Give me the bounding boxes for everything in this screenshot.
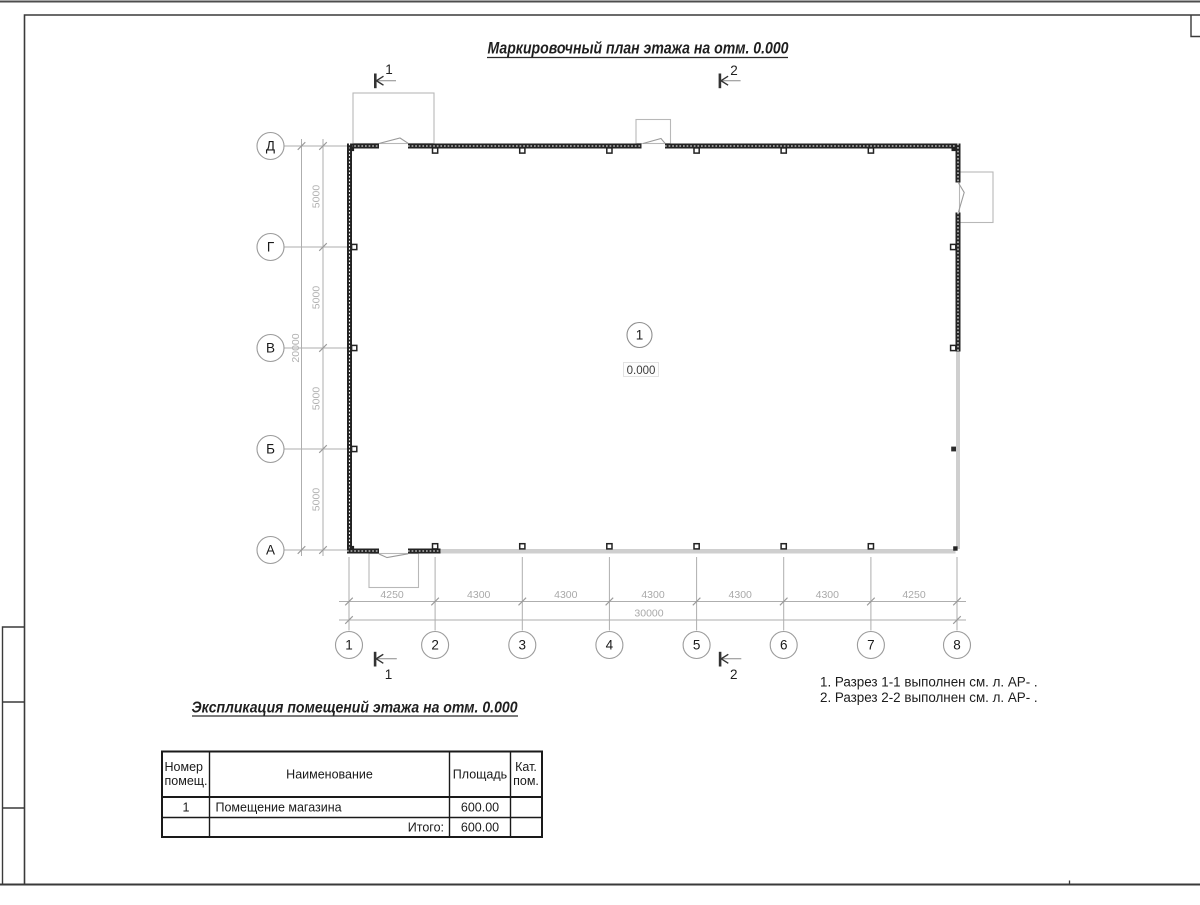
svg-text:помещ.: помещ. (165, 774, 208, 788)
svg-text:4250: 4250 (902, 589, 926, 601)
svg-text:4300: 4300 (641, 589, 665, 601)
svg-text:Номер: Номер (165, 760, 204, 774)
svg-text:20000: 20000 (290, 333, 302, 362)
svg-text:4300: 4300 (816, 589, 840, 601)
svg-text:1: 1 (385, 667, 393, 682)
svg-text:2: 2 (730, 63, 738, 78)
svg-text:600.00: 600.00 (461, 801, 499, 815)
svg-text:1: 1 (385, 62, 393, 77)
svg-text:7: 7 (867, 638, 875, 653)
svg-text:4300: 4300 (467, 589, 491, 601)
svg-text:Экспликация помещений этажа на: Экспликация помещений этажа на отм. 0.00… (192, 700, 518, 717)
svg-text:Наименование: Наименование (286, 768, 373, 782)
svg-text:Маркировочный план этажа на от: Маркировочный план этажа на отм. 0.000 (488, 40, 790, 58)
svg-text:5000: 5000 (311, 185, 323, 209)
svg-text:Кат.: Кат. (515, 760, 537, 774)
svg-text:2: 2 (730, 667, 738, 682)
svg-text:1: 1 (345, 638, 353, 653)
svg-text:Помещение магазина: Помещение магазина (216, 801, 342, 815)
svg-text:1. Разрез 1-1 выполнен см. л.: 1. Разрез 1-1 выполнен см. л. АР- . (820, 675, 1038, 690)
svg-text:4: 4 (606, 638, 614, 653)
svg-text:0.000: 0.000 (627, 365, 656, 377)
svg-text:1: 1 (183, 801, 190, 815)
svg-text:А: А (266, 543, 275, 558)
svg-text:4300: 4300 (554, 589, 578, 601)
svg-text:Площадь: Площадь (453, 768, 507, 782)
svg-text:30000: 30000 (634, 608, 663, 620)
svg-text:4250: 4250 (380, 589, 404, 601)
svg-text:6: 6 (780, 638, 788, 653)
svg-text:4300: 4300 (729, 589, 753, 601)
svg-text:600.00: 600.00 (461, 821, 499, 835)
svg-text:Итого:: Итого: (408, 821, 444, 835)
svg-text:5000: 5000 (311, 286, 323, 310)
svg-text:Д: Д (266, 139, 275, 154)
svg-text:5: 5 (693, 638, 701, 653)
svg-text:В: В (266, 341, 275, 356)
svg-text:Б: Б (266, 442, 275, 457)
svg-text:1: 1 (636, 328, 644, 343)
svg-text:2: 2 (431, 638, 439, 653)
svg-text:Г: Г (267, 240, 275, 255)
svg-text:5000: 5000 (311, 488, 323, 512)
svg-text:5000: 5000 (311, 387, 323, 411)
svg-text:2. Разрез 2-2 выполнен см. л.: 2. Разрез 2-2 выполнен см. л. АР- . (820, 690, 1038, 705)
svg-text:пом.: пом. (513, 774, 539, 788)
svg-text:8: 8 (953, 638, 961, 653)
svg-text:3: 3 (519, 638, 527, 653)
